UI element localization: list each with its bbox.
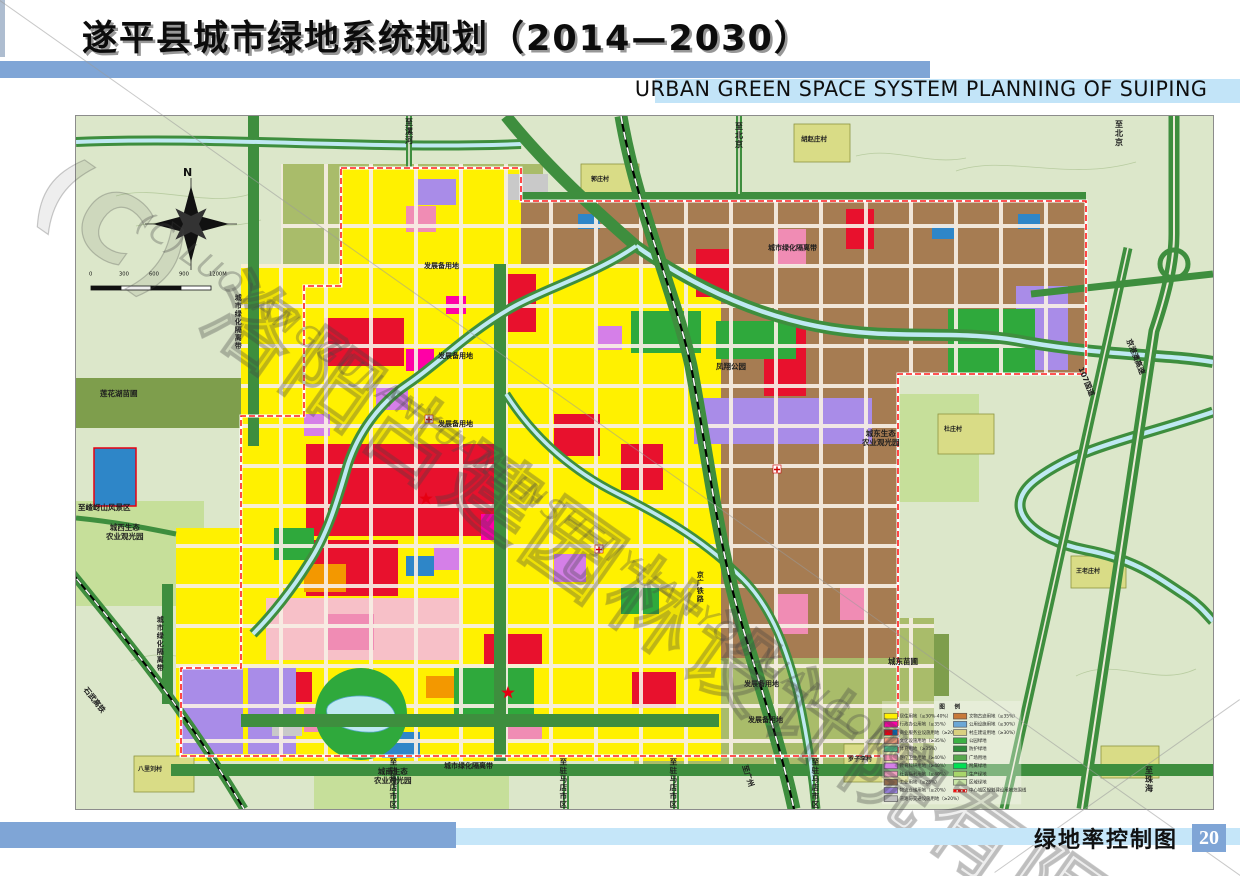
legend-color-swatch — [884, 796, 898, 802]
scale-tick: 300 — [119, 271, 129, 277]
legend-color-swatch — [884, 779, 898, 785]
legend-row: 广场用地 — [953, 753, 1020, 761]
page: 遂平县城市绿地系统规划（2014—2030） URBAN GREEN SPACE… — [0, 0, 1240, 876]
legend-row: 公园绿地 — [953, 737, 1020, 745]
north-label: N — [183, 166, 192, 179]
legend-row: 社会福利用地（≥40%） — [884, 770, 951, 778]
legend-row: 商业服务业设施用地（≥20%） — [884, 728, 951, 736]
legend-color-swatch — [953, 779, 967, 785]
legend-label: 区域绿地 — [969, 779, 987, 785]
legend-label: 居住用地（≥30%-40%） — [900, 713, 951, 719]
legend-row: 行政办公用地（≥35%） — [884, 720, 951, 728]
map-legend: 图 例 居住用地（≥30%-40%）行政办公用地（≥35%）商业服务业设施用地（… — [882, 701, 1021, 804]
scale-tick: 900 — [179, 271, 189, 277]
legend-color-swatch — [884, 721, 898, 727]
legend-label: 公园绿地 — [969, 738, 987, 744]
legend-row: 文化设施用地（≥35%） — [884, 737, 951, 745]
legend-label: 文物古迹用地（≥35%） — [969, 713, 1018, 719]
legend-label: 教育科研用地（≥40%） — [900, 763, 949, 769]
legend-row: 居住用地（≥30%-40%） — [884, 712, 951, 720]
legend-row: 医疗卫生用地（≥40%） — [884, 753, 951, 761]
corner-accent-bar — [0, 0, 5, 57]
legend-color-swatch — [884, 763, 898, 769]
hospital-icon — [595, 545, 603, 553]
legend-color-swatch — [884, 738, 898, 744]
legend-row: 道路与交通设施用地（≥20%） — [884, 795, 951, 803]
legend-row: 教育科研用地（≥40%） — [884, 762, 951, 770]
page-subtitle-english: URBAN GREEN SPACE SYSTEM PLANNING OF SUI… — [634, 77, 1207, 102]
header-blue-bar — [0, 61, 930, 78]
legend-row: 村庄建设用地（≥30%） — [953, 728, 1020, 736]
legend-label: 村庄建设用地（≥30%） — [969, 729, 1018, 735]
scale-tick-labels: 03006009001200M — [86, 271, 236, 283]
legend-row: 生产绿地 — [953, 770, 1020, 778]
legend-row: 体育用地（≥35%） — [884, 745, 951, 753]
footer-dark-bar — [0, 822, 456, 848]
legend-title: 图 例 — [884, 702, 1019, 710]
legend-color-swatch — [953, 763, 967, 769]
legend-label: 文化设施用地（≥35%） — [900, 738, 949, 744]
legend-label: 生产绿地 — [969, 771, 987, 777]
legend-color-swatch — [884, 713, 898, 719]
legend-color-swatch — [953, 746, 967, 752]
legend-label: 社会福利用地（≥40%） — [900, 771, 949, 777]
legend-color-swatch — [884, 729, 898, 735]
legend-row: 中心城区规划建设用地范围线 — [953, 786, 1020, 794]
legend-row: 物流仓储用地（≥20%） — [884, 786, 951, 794]
legend-row: 防护绿地 — [953, 745, 1020, 753]
scale-bar — [91, 286, 211, 290]
legend-label: 体育用地（≥35%） — [900, 746, 940, 752]
legend-row: 公用设施用地（≥30%） — [953, 720, 1020, 728]
legend-label: 广场用地 — [969, 754, 987, 760]
planning-map: N 至漯河郭庄村胡赵庄村至北京至北京城市绿化隔离带城市绿化隔离带城市绿化隔离带城… — [75, 115, 1214, 810]
page-title: 遂平县城市绿地系统规划（2014—2030） — [82, 10, 811, 61]
legend-color-swatch — [953, 729, 967, 735]
legend-color-swatch — [953, 713, 967, 719]
scale-tick: 0 — [89, 271, 92, 277]
legend-label: 附属绿地 — [969, 763, 987, 769]
legend-row: 附属绿地 — [953, 762, 1020, 770]
legend-label: 物流仓储用地（≥20%） — [900, 787, 949, 793]
hospital-icon — [773, 465, 781, 473]
legend-color-swatch — [884, 771, 898, 777]
scale-tick: 1200M — [209, 271, 227, 277]
legend-label: 防护绿地 — [969, 746, 987, 752]
legend-row: 区域绿地 — [953, 778, 1020, 786]
page-number: 20 — [1192, 824, 1226, 852]
legend-color-swatch — [953, 738, 967, 744]
legend-left-column: 居住用地（≥30%-40%）行政办公用地（≥35%）商业服务业设施用地（≥20%… — [884, 712, 951, 803]
map-graphic: N — [76, 116, 1213, 809]
legend-row: 工业用地（≥25%） — [884, 778, 951, 786]
legend-color-swatch — [884, 746, 898, 752]
legend-color-swatch — [953, 754, 967, 760]
legend-label: 医疗卫生用地（≥40%） — [900, 754, 949, 760]
legend-color-swatch — [884, 754, 898, 760]
legend-row: 文物古迹用地（≥35%） — [953, 712, 1020, 720]
legend-label: 行政办公用地（≥35%） — [900, 721, 949, 727]
legend-color-swatch — [884, 787, 898, 793]
legend-label: 中心城区规划建设用地范围线 — [969, 787, 1026, 793]
legend-color-swatch — [953, 721, 967, 727]
legend-right-column: 文物古迹用地（≥35%）公用设施用地（≥30%）村庄建设用地（≥30%）公园绿地… — [953, 712, 1020, 803]
hospital-icon — [425, 415, 433, 423]
legend-label: 工业用地（≥25%） — [900, 779, 940, 785]
scale-tick: 600 — [149, 271, 159, 277]
legend-color-swatch — [953, 771, 967, 777]
legend-boundary-swatch — [953, 789, 967, 792]
legend-label: 公用设施用地（≥30%） — [969, 721, 1018, 727]
footer-caption: 绿地率控制图 — [1034, 822, 1178, 854]
